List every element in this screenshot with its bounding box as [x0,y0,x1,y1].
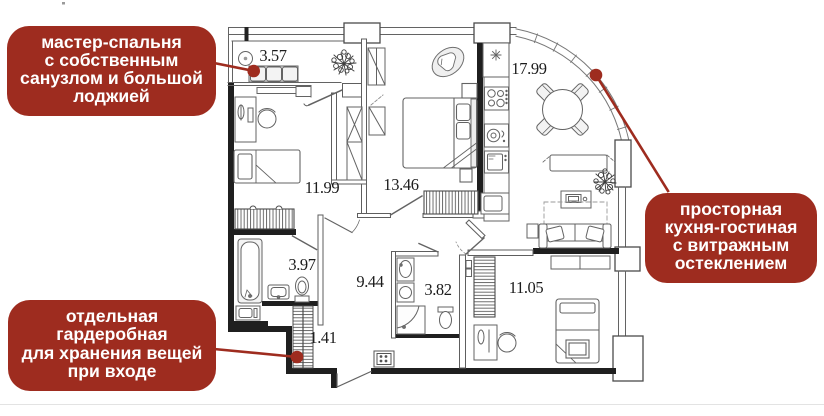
svg-text:3.57: 3.57 [259,46,286,65]
svg-text:17.99: 17.99 [511,59,546,78]
svg-text:9.44: 9.44 [356,272,383,291]
svg-text:13.46: 13.46 [383,175,418,194]
svg-text:11.05: 11.05 [509,278,544,297]
svg-text:3.97: 3.97 [288,255,315,274]
svg-text:3.82: 3.82 [424,280,451,299]
svg-text:1.41: 1.41 [309,328,336,347]
svg-text:11.99: 11.99 [305,178,340,197]
